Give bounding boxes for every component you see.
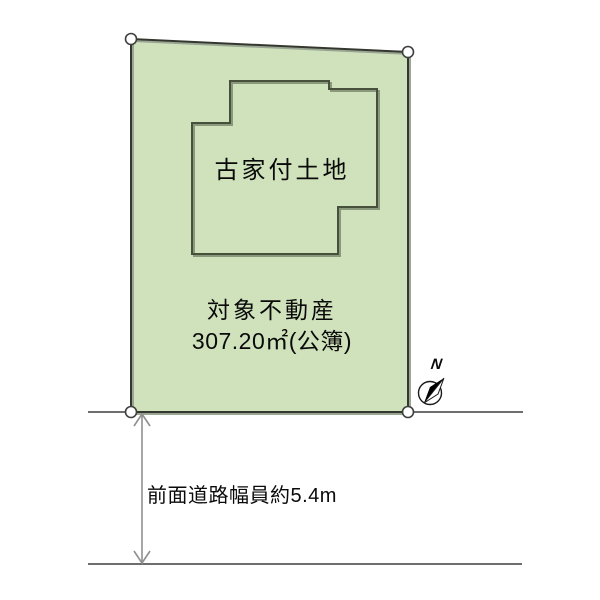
north-label: N bbox=[430, 356, 443, 373]
north-compass-icon bbox=[419, 378, 445, 405]
boundary-point-marker-top-left bbox=[126, 34, 137, 45]
building-label: 古家付土地 bbox=[182, 150, 382, 185]
boundary-point-marker-bottom-right bbox=[403, 407, 414, 418]
road-width-label: 前面道路幅員約5.4m bbox=[147, 479, 337, 508]
parcel-label: 対象不動産 307.20㎡(公簿) bbox=[162, 295, 382, 357]
plot-diagram: 古家付土地 対象不動産 307.20㎡(公簿) 前面道路幅員約5.4m N bbox=[0, 0, 600, 600]
boundary-point-marker-bottom-left bbox=[126, 407, 137, 418]
parcel-area: 307.20㎡(公簿) bbox=[162, 326, 382, 357]
parcel-title: 対象不動産 bbox=[162, 295, 382, 326]
boundary-point-marker-top-right bbox=[403, 47, 414, 58]
